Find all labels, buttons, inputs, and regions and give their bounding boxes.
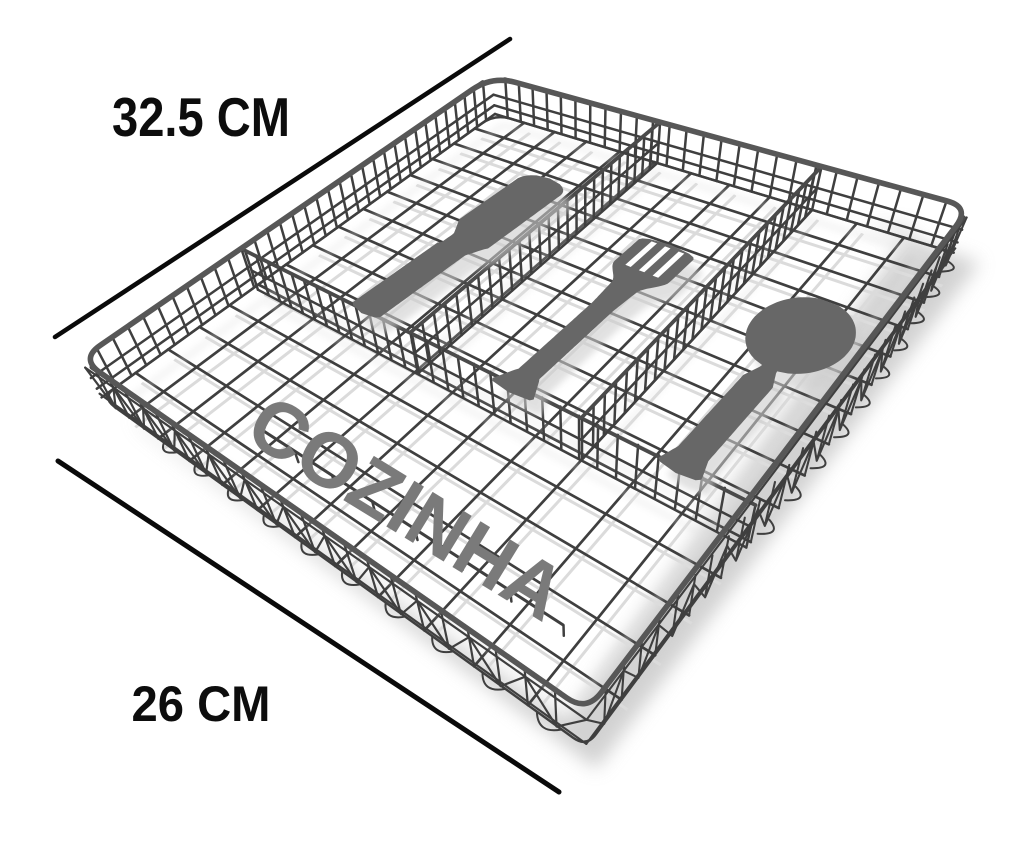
svg-text:26 CM: 26 CM xyxy=(132,676,271,732)
svg-text:32.5 CM: 32.5 CM xyxy=(112,86,290,148)
